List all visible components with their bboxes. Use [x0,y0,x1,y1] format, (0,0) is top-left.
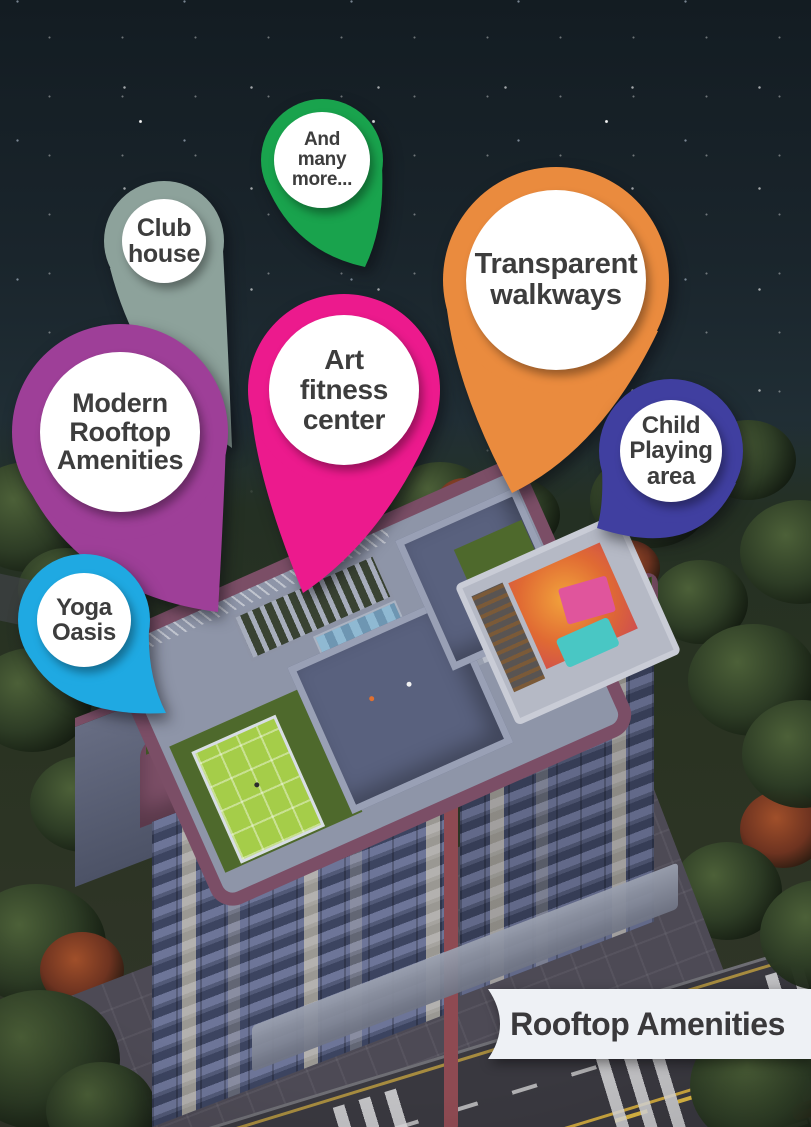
title-ribbon: Rooftop Amenities [462,989,811,1059]
pin-yoga-oasis-label: Yoga Oasis [37,573,131,667]
pin-transparent-walkways-label: Transparent walkways [466,190,646,370]
pin-label-line: center [303,405,385,435]
pin-label-line: Art [324,345,364,375]
pin-label-line: And [304,130,340,150]
pin-label-line: Oasis [52,620,116,645]
pin-club-house-label: Club house [122,199,206,283]
pin-label-line: more... [292,170,352,190]
pin-label-line: Club [137,215,191,242]
pin-label-line: Transparent [475,249,638,280]
pin-label-line: fitness [300,375,388,405]
pin-label-line: Rooftop [69,418,170,447]
pin-label-line: house [128,241,200,268]
pin-and-many-more-label: And many more... [274,112,370,208]
pin-child-playing-area-label: Child Playing area [620,400,722,502]
pin-label-line: Amenities [57,446,183,475]
pin-label-line: Yoga [56,595,112,620]
pin-label-line: Modern [72,389,168,418]
pin-art-fitness-center-label: Art fitness center [269,315,419,465]
pin-label-line: Playing [629,438,712,463]
pin-label-line: many [298,150,346,170]
poster-title: Rooftop Amenities [462,989,811,1059]
rooftop-amenities-poster: And many more... Club house Transparent … [0,0,811,1127]
pin-markers-layer [0,0,811,1127]
pin-label-line: Child [642,413,701,438]
pin-label-line: walkways [490,280,621,311]
pin-label-line: area [647,464,695,489]
pin-modern-rooftop-amenities-label: Modern Rooftop Amenities [40,352,200,512]
